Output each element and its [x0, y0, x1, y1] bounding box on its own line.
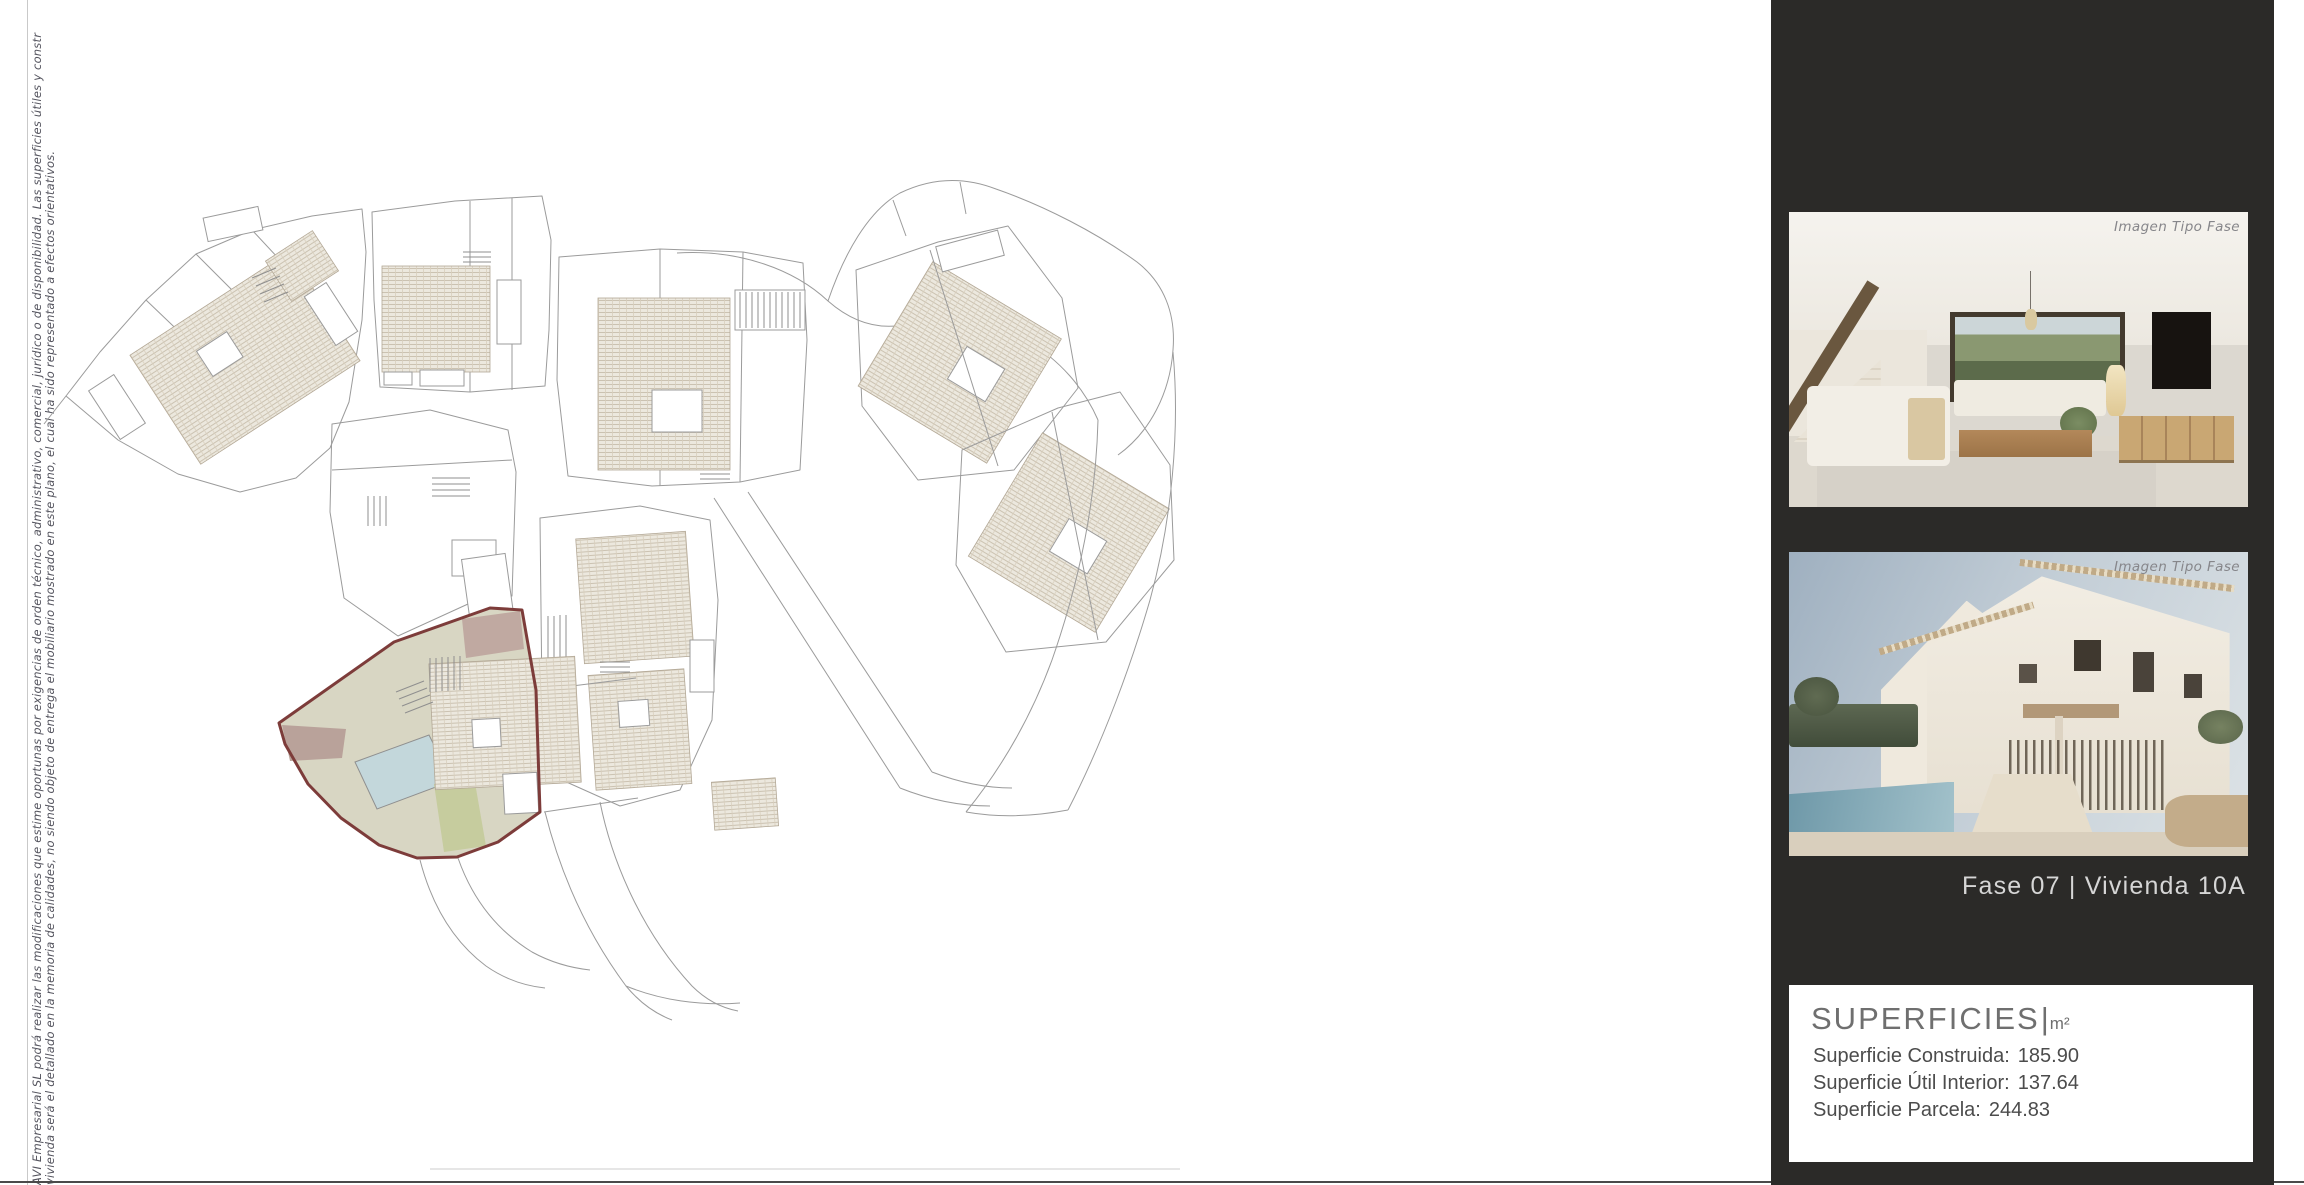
page-fold-line	[430, 1168, 1180, 1170]
image-watermark-label: Imagen Tipo Fase	[2114, 219, 2240, 235]
superficie-util-row: Superficie Útil Interior:137.64	[1813, 1070, 2253, 1097]
interior-tv	[2152, 312, 2212, 389]
exterior-rock-wall	[2165, 795, 2248, 847]
superficie-util-value: 137.64	[2018, 1072, 2079, 1094]
interior-coffee-table	[1959, 430, 2092, 457]
exterior-window	[2074, 640, 2102, 670]
superficies-box: SUPERFICIES|m² Superficie Construida:185…	[1789, 985, 2253, 1162]
superficie-parcela-value: 244.83	[1989, 1099, 2050, 1121]
exterior-window	[2133, 652, 2154, 692]
superficies-unit: m²	[2050, 1014, 2070, 1033]
pendant-lamp-cord	[2030, 271, 2031, 312]
cluster-center	[557, 249, 807, 486]
cluster-north-middle	[372, 196, 551, 392]
exterior-entry-canopy	[2023, 704, 2119, 718]
pendant-lamp	[2025, 309, 2037, 330]
superficie-parcela-row: Superficie Parcela:244.83	[1813, 1097, 2253, 1124]
info-sidebar: Imagen Tipo Fase Imagen Tipo Fase Fase 0…	[1771, 0, 2274, 1185]
unit-caption: Fase 07 | Vivienda 10A	[1962, 872, 2246, 901]
superficie-construida-row: Superficie Construida:185.90	[1813, 1043, 2253, 1070]
cluster-northwest	[44, 206, 366, 492]
image-watermark-label: Imagen Tipo Fase	[2114, 559, 2240, 575]
interior-sideboard-slats	[2119, 416, 2234, 460]
interior-render-image: Imagen Tipo Fase	[1789, 212, 2248, 507]
superficie-util-label: Superficie Útil Interior:	[1813, 1072, 2010, 1094]
superficie-construida-value: 185.90	[2018, 1045, 2079, 1067]
exterior-bush	[2198, 710, 2244, 743]
exterior-window	[2184, 674, 2202, 698]
exterior-render-image: Imagen Tipo Fase	[1789, 552, 2248, 856]
road-central	[714, 492, 1012, 806]
site-plan	[0, 0, 1780, 1185]
superficies-title: SUPERFICIES|m²	[1811, 1001, 2253, 1037]
superficies-title-text: SUPERFICIES	[1811, 1001, 2040, 1036]
interior-throw-blanket	[1908, 398, 1945, 460]
exterior-window	[2019, 664, 2037, 682]
interior-floor-lamp	[2106, 365, 2126, 415]
superficies-pipe: |	[2041, 1001, 2049, 1036]
superficie-construida-label: Superficie Construida:	[1813, 1045, 2010, 1067]
superficie-parcela-label: Superficie Parcela:	[1813, 1099, 1981, 1121]
highlighted-plot[interactable]	[279, 608, 583, 858]
